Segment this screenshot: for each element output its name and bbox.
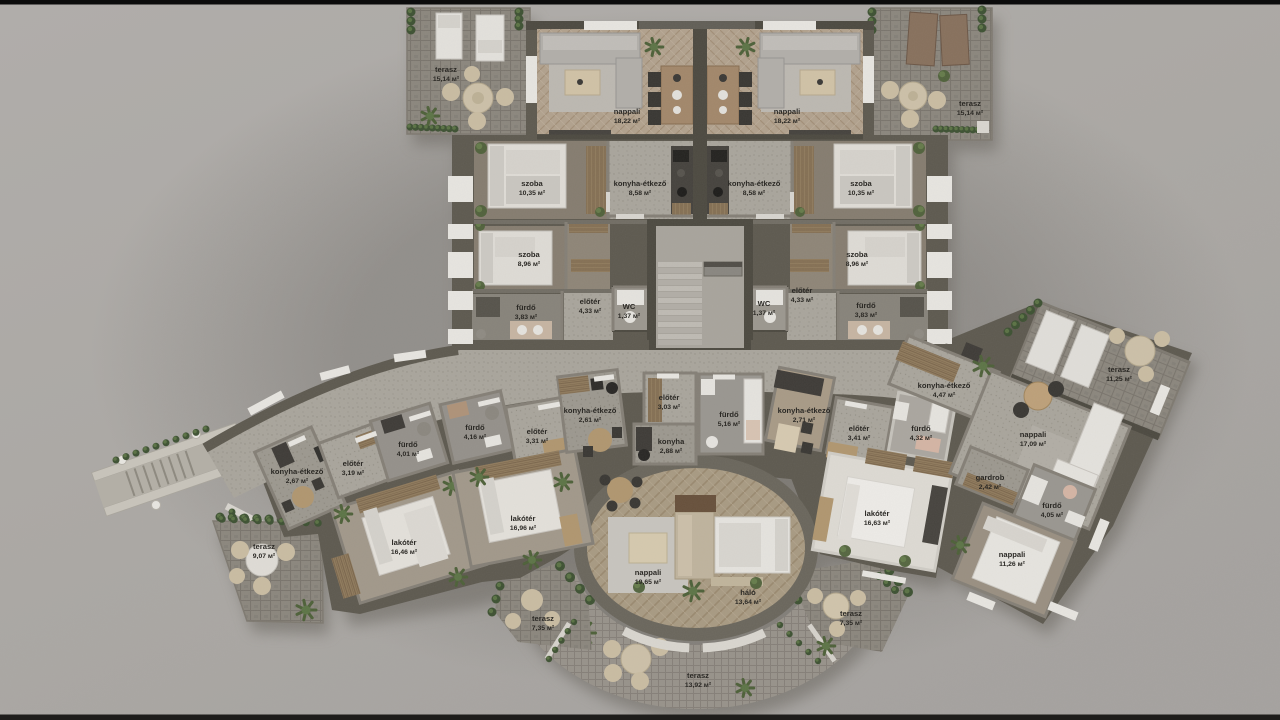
svg-text:3,03 м²: 3,03 м² <box>658 404 681 411</box>
svg-text:8,58 м²: 8,58 м² <box>743 190 766 197</box>
svg-text:4,47 м²: 4,47 м² <box>933 392 956 399</box>
svg-text:konyha-étkező: konyha-étkező <box>564 406 617 415</box>
svg-text:nappali: nappali <box>1020 430 1047 439</box>
svg-text:8,96 м²: 8,96 м² <box>518 261 541 268</box>
svg-text:11,25 м²: 11,25 м² <box>1106 376 1133 383</box>
svg-text:4,01 м²: 4,01 м² <box>397 451 420 458</box>
svg-text:15,14 м²: 15,14 м² <box>433 76 460 83</box>
svg-text:7,35 м²: 7,35 м² <box>840 620 863 627</box>
svg-text:WC: WC <box>623 302 636 311</box>
svg-text:fürdő: fürdő <box>911 424 931 433</box>
svg-text:2,67 м²: 2,67 м² <box>286 478 309 485</box>
svg-text:nappali: nappali <box>999 550 1026 559</box>
svg-text:18,22 м²: 18,22 м² <box>614 118 641 125</box>
svg-text:9,07 м²: 9,07 м² <box>253 553 276 560</box>
svg-text:nappali: nappali <box>614 107 641 116</box>
svg-text:konyha-étkező: konyha-étkező <box>728 179 781 188</box>
svg-text:3,41 м²: 3,41 м² <box>848 435 871 442</box>
svg-text:terasz: terasz <box>1108 365 1130 374</box>
svg-text:16,63 м²: 16,63 м² <box>864 520 891 527</box>
svg-text:10,35 м²: 10,35 м² <box>848 190 875 197</box>
svg-text:terasz: terasz <box>687 671 709 680</box>
svg-text:15,14 м²: 15,14 м² <box>957 110 984 117</box>
svg-text:lakótér: lakótér <box>511 514 536 523</box>
svg-text:8,96 м²: 8,96 м² <box>846 261 869 268</box>
svg-text:nappali: nappali <box>635 568 662 577</box>
svg-text:szoba: szoba <box>518 250 540 259</box>
svg-text:4,05 м²: 4,05 м² <box>1041 512 1064 519</box>
svg-text:terasz: terasz <box>959 99 981 108</box>
svg-text:4,33 м²: 4,33 м² <box>791 297 814 304</box>
svg-text:16,46 м²: 16,46 м² <box>391 549 418 556</box>
svg-text:konyha-étkező: konyha-étkező <box>614 179 667 188</box>
svg-text:szoba: szoba <box>521 179 543 188</box>
svg-text:lakótér: lakótér <box>865 509 890 518</box>
svg-text:1,37 м²: 1,37 м² <box>618 313 641 320</box>
svg-text:szoba: szoba <box>846 250 868 259</box>
svg-text:fürdő: fürdő <box>465 423 485 432</box>
svg-text:2,42 м²: 2,42 м² <box>979 484 1002 491</box>
svg-text:szoba: szoba <box>850 179 872 188</box>
svg-text:terasz: terasz <box>435 65 457 74</box>
svg-text:terasz: terasz <box>253 542 275 551</box>
svg-text:3,31 м²: 3,31 м² <box>526 438 549 445</box>
svg-text:4,16 м²: 4,16 м² <box>464 434 487 441</box>
svg-text:fürdő: fürdő <box>719 410 739 419</box>
svg-text:13,92 м²: 13,92 м² <box>685 682 712 689</box>
svg-text:terasz: terasz <box>840 609 862 618</box>
svg-text:konyha-étkező: konyha-étkező <box>778 406 831 415</box>
svg-text:18,22 м²: 18,22 м² <box>774 118 801 125</box>
svg-text:5,16 м²: 5,16 м² <box>718 421 741 428</box>
svg-text:4,33 м²: 4,33 м² <box>579 308 602 315</box>
svg-text:4,32 м²: 4,32 м² <box>910 435 933 442</box>
svg-text:10,35 м²: 10,35 м² <box>519 190 546 197</box>
svg-text:előtér: előtér <box>580 297 601 306</box>
svg-text:2,88 м²: 2,88 м² <box>660 448 683 455</box>
svg-text:előtér: előtér <box>527 427 548 436</box>
svg-text:2,61 м²: 2,61 м² <box>579 417 602 424</box>
svg-text:13,64 м²: 13,64 м² <box>735 599 762 606</box>
svg-text:3,83 м²: 3,83 м² <box>855 312 878 319</box>
svg-text:fürdő: fürdő <box>516 303 536 312</box>
svg-text:előtér: előtér <box>849 424 870 433</box>
svg-text:fürdő: fürdő <box>398 440 418 449</box>
svg-text:17,09 м²: 17,09 м² <box>1020 441 1047 448</box>
svg-text:7,35 м²: 7,35 м² <box>532 625 555 632</box>
svg-text:fürdő: fürdő <box>1042 501 1062 510</box>
svg-text:konyha: konyha <box>658 437 685 446</box>
svg-text:háló: háló <box>740 588 756 597</box>
svg-text:WC: WC <box>758 299 771 308</box>
svg-text:11,26 м²: 11,26 м² <box>999 561 1026 568</box>
svg-text:16,96 м²: 16,96 м² <box>510 525 537 532</box>
svg-text:2,71 м²: 2,71 м² <box>793 417 816 424</box>
svg-text:3,19 м²: 3,19 м² <box>342 470 365 477</box>
svg-text:3,83 м²: 3,83 м² <box>515 314 538 321</box>
svg-text:lakótér: lakótér <box>392 538 417 547</box>
svg-text:nappali: nappali <box>774 107 801 116</box>
svg-text:előtér: előtér <box>659 393 680 402</box>
svg-text:19,65 м²: 19,65 м² <box>635 579 662 586</box>
svg-text:fürdő: fürdő <box>856 301 876 310</box>
svg-text:előtér: előtér <box>792 286 813 295</box>
svg-text:8,58 м²: 8,58 м² <box>629 190 652 197</box>
svg-text:előtér: előtér <box>343 459 364 468</box>
svg-text:1,37 м²: 1,37 м² <box>753 310 776 317</box>
svg-text:konyha-étkező: konyha-étkező <box>271 467 324 476</box>
svg-text:gardrob: gardrob <box>976 473 1005 482</box>
svg-text:terasz: terasz <box>532 614 554 623</box>
svg-text:konyha-étkező: konyha-étkező <box>918 381 971 390</box>
